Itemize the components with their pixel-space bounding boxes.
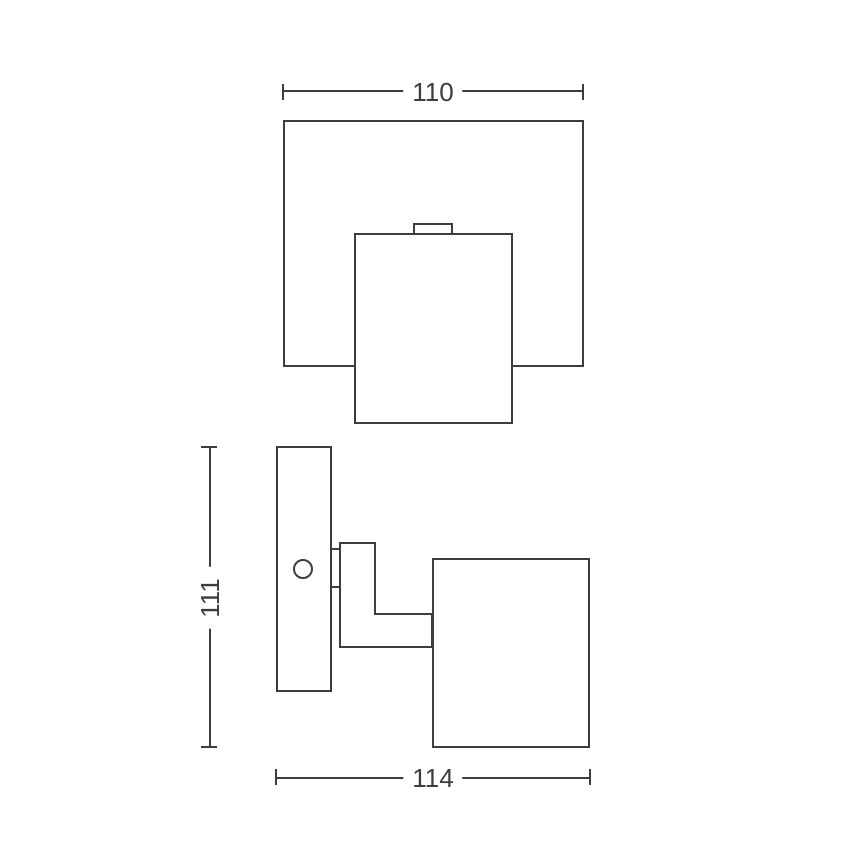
- dimension-tick-bottom: [201, 746, 217, 748]
- dimension-tick-top: [201, 446, 217, 448]
- dimension-label-bottom-width: 114: [403, 765, 462, 791]
- dimension-label-top-width: 110: [403, 79, 462, 105]
- lamp-head-front-outline: [354, 233, 513, 424]
- dimension-tick-right: [582, 84, 584, 100]
- dimension-tick-left: [275, 769, 277, 785]
- dimension-tick-right: [589, 769, 591, 785]
- dimension-label-side-height: 111: [197, 567, 223, 629]
- bracket-arm-outline: [339, 542, 434, 649]
- lamp-head-side-outline: [432, 558, 590, 748]
- drawing-canvas: 110 111 114: [0, 0, 868, 868]
- dimension-tick-left: [282, 84, 284, 100]
- screw-hole-circle: [293, 559, 313, 579]
